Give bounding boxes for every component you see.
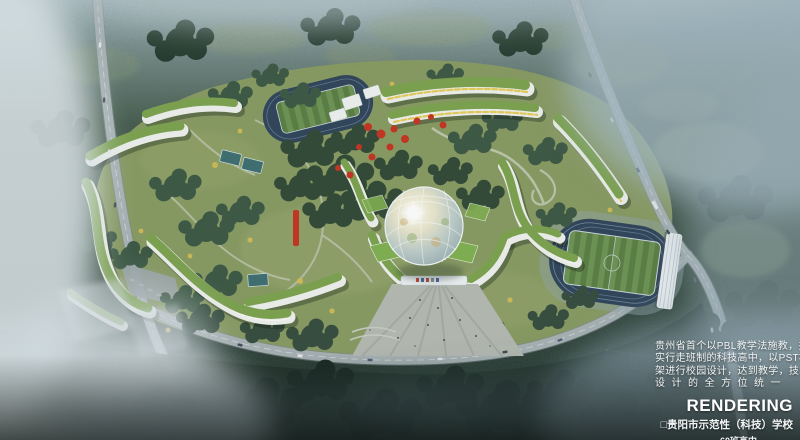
- description-line-2: 实行走班制的科技高中，以PST框: [655, 353, 793, 365]
- description-line-3: 架进行校园设计，达到教学，技术，: [655, 366, 793, 378]
- project-name: □贵阳市示范性（科技）学校: [655, 417, 793, 432]
- school-capacity: 60班高中: [655, 434, 793, 440]
- architectural-rendering: 贵州省首个以PBL教学法施教，并 实行走班制的科技高中，以PST框 架进行校园设…: [0, 0, 800, 440]
- description-line-4: 设计的全方位统一: [655, 378, 793, 390]
- caption-block: 贵州省首个以PBL教学法施教，并 实行走班制的科技高中，以PST框 架进行校园设…: [655, 341, 793, 440]
- rendering-title: RENDERING: [655, 396, 793, 416]
- description-line-1: 贵州省首个以PBL教学法施教，并: [655, 341, 793, 353]
